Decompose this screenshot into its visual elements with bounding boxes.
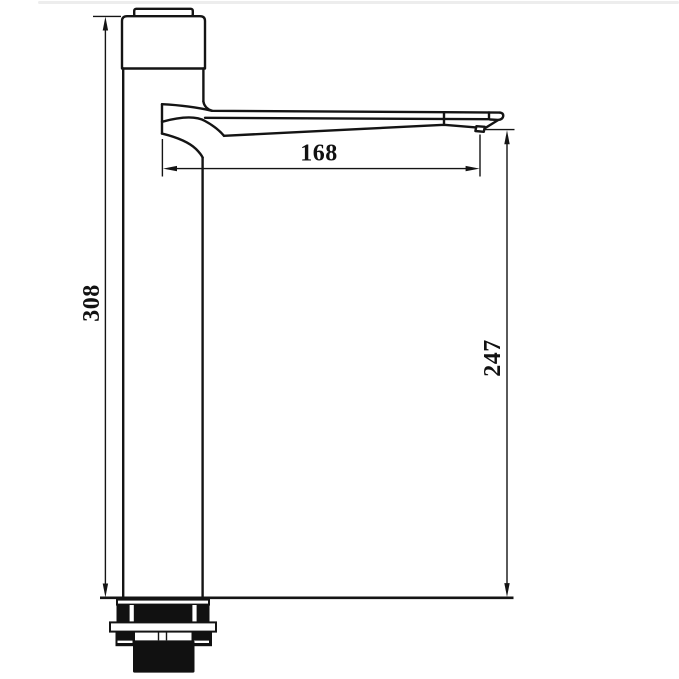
shank-detail-ticks — [159, 632, 167, 641]
faucet-dimension-drawing: 308 168 247 — [0, 0, 679, 679]
spout-column-cusp-curve — [162, 134, 203, 158]
nut-lug-right — [192, 632, 213, 647]
faucet-outline — [122, 9, 503, 597]
spout-aerator-outlet — [475, 126, 484, 132]
dimension-308-arrow-up — [103, 17, 108, 31]
spout-end-cap — [485, 113, 504, 129]
dimension-168-arrow-right — [466, 166, 480, 171]
dimension-247-arrow-down — [504, 583, 509, 597]
base-flange — [117, 600, 209, 605]
dimension-247-arrow-up — [504, 130, 509, 144]
mounting-hardware — [110, 600, 216, 673]
dimension-168-arrow-left — [163, 166, 177, 171]
technical-drawing-canvas: 308 168 247 — [0, 0, 679, 679]
dimension-label-overall-height: 308 — [79, 284, 105, 322]
dimension-overall-height: 308 — [79, 16, 121, 597]
nut-lug-left — [116, 632, 136, 647]
spout-bottom-edge — [224, 112, 476, 136]
top-edge-artifact-line — [38, 1, 679, 4]
threaded-shank — [133, 640, 195, 672]
nut-lug-left-notch — [118, 641, 133, 643]
dimension-308-arrow-down — [103, 584, 108, 598]
nut-lug-right-notch — [194, 641, 210, 643]
dimension-label-spout-outlet-height: 247 — [480, 339, 506, 377]
dimension-spout-reach: 168 — [162, 135, 480, 177]
gasket-highlight-right — [192, 605, 196, 622]
gasket-highlight-left — [130, 605, 134, 622]
dimension-spout-outlet-height: 247 — [480, 130, 515, 597]
spout-top-inner-line — [205, 112, 489, 119]
spout-underside-front-curve — [162, 117, 224, 135]
dimension-label-spout-reach: 168 — [300, 141, 338, 167]
lock-nut — [110, 622, 216, 631]
faucet-head-block — [122, 16, 205, 68]
